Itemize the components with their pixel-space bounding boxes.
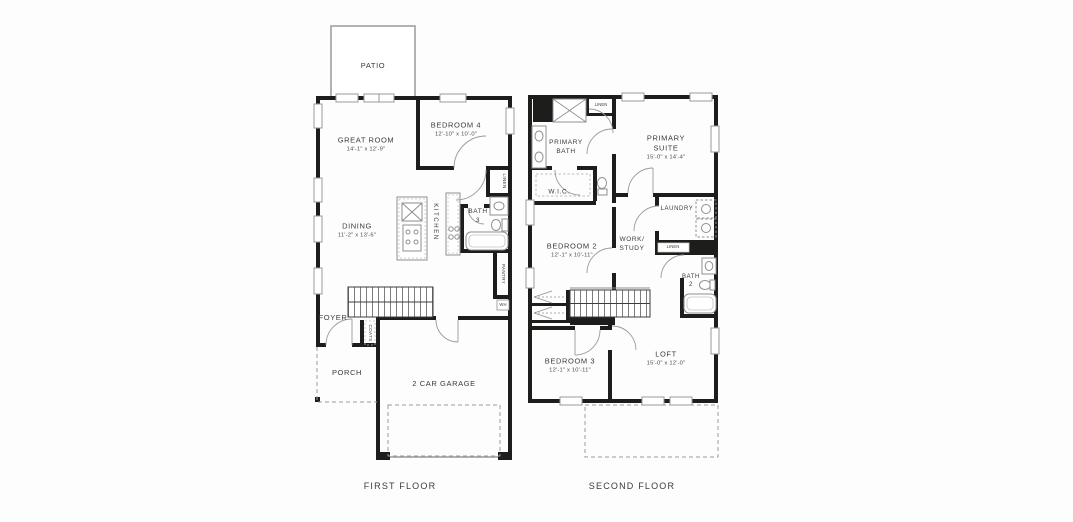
closet-label-pantry: PANTRY [500, 264, 506, 284]
room-dims: 12'-10" x 10'-0" [431, 132, 481, 140]
room-label-primary-suite: PRIMARY SUITE 15'-0" x 14'-4" [647, 133, 686, 162]
room-dims: 12'-1" x 10'-11" [547, 253, 597, 261]
stairs-second-floor [570, 288, 650, 317]
room-name: GREAT ROOM [338, 136, 395, 146]
room-dims: 14'-1" x 12'-9" [338, 147, 395, 155]
room-label-bedroom-3: BEDROOM 3 12'-1" x 10'-11" [545, 357, 595, 376]
room-label-dining: DINING 11'-2" x 13'-6" [338, 222, 376, 241]
room-name-2: STUDY [619, 245, 644, 254]
washer-dryer [696, 200, 716, 237]
room-label-primary-bath: PRIMARY BATH [549, 139, 583, 157]
room-name: WORK/ [619, 236, 644, 245]
room-name: PRIMARY [647, 133, 686, 143]
shower [553, 99, 586, 122]
room-dims: 11'-2" x 13'-6" [338, 233, 376, 241]
closet-label-coats: COATS [367, 325, 373, 342]
room-label-foyer: FOYER [319, 313, 348, 323]
room-name-2: SUITE [647, 144, 686, 154]
water-heater-label: WH [499, 302, 506, 308]
room-label-loft: LOFT 15'-0" x 12'-0" [647, 350, 686, 369]
room-label-patio: PATIO [361, 61, 385, 71]
room-label-kitchen: KITCHEN [431, 203, 439, 241]
stairs-first-floor [348, 287, 433, 317]
room-label-laundry: LAUNDRY [661, 205, 694, 213]
room-name: BATH [682, 273, 700, 281]
room-name: BEDROOM 3 [545, 357, 595, 367]
room-label-bedroom-4: BEDROOM 4 12'-10" x 10'-0" [431, 121, 481, 140]
room-label-garage: 2 CAR GARAGE [412, 379, 475, 389]
room-name: DINING [338, 222, 376, 232]
room-dims: 15'-0" x 14'-4" [647, 155, 686, 163]
roof-below-dashed [585, 405, 718, 457]
room-name: LOFT [647, 350, 686, 360]
room-label-porch: PORCH [332, 368, 362, 378]
garage-apron-dashed [388, 405, 500, 456]
room-number: 2 [682, 281, 700, 289]
room-label-bath-2: BATH 2 [682, 273, 700, 289]
first-floor-windows [314, 94, 514, 294]
room-label-bedroom-2: BEDROOM 2 12'-1" x 10'-11" [547, 242, 597, 261]
room-dims: 12'-1" x 10'-11" [545, 368, 595, 376]
first-floor-title: FIRST FLOOR [364, 480, 437, 492]
kitchen-counter [446, 193, 460, 255]
kitchen-island [397, 197, 427, 260]
room-name: PRIMARY [549, 139, 583, 148]
room-label-wic: W.I.C. [548, 189, 569, 198]
closet-label-linen: LINEN [501, 173, 507, 188]
room-name: BEDROOM 4 [431, 121, 481, 131]
room-number: 3 [468, 217, 487, 226]
closet-label-linen-upper: LINEN [595, 102, 608, 108]
room-name-2: BATH [549, 148, 583, 157]
room-label-bath-3: BATH 3 [468, 208, 487, 226]
room-label-great-room: GREAT ROOM 14'-1" x 12'-9" [338, 136, 395, 155]
room-dims: 15'-0" x 12'-0" [647, 361, 686, 369]
room-label-work-study: WORK/ STUDY [619, 236, 644, 254]
room-name: BATH [468, 208, 487, 217]
floorplan-canvas: PATIO GREAT ROOM 14'-1" x 12'-9" BEDROOM… [0, 0, 1073, 522]
second-floor-title: SECOND FLOOR [589, 480, 675, 492]
first-floor-plan-drawing [300, 20, 520, 500]
closet-label-linen-hall: LINEN [667, 244, 680, 250]
room-name: BEDROOM 2 [547, 242, 597, 252]
